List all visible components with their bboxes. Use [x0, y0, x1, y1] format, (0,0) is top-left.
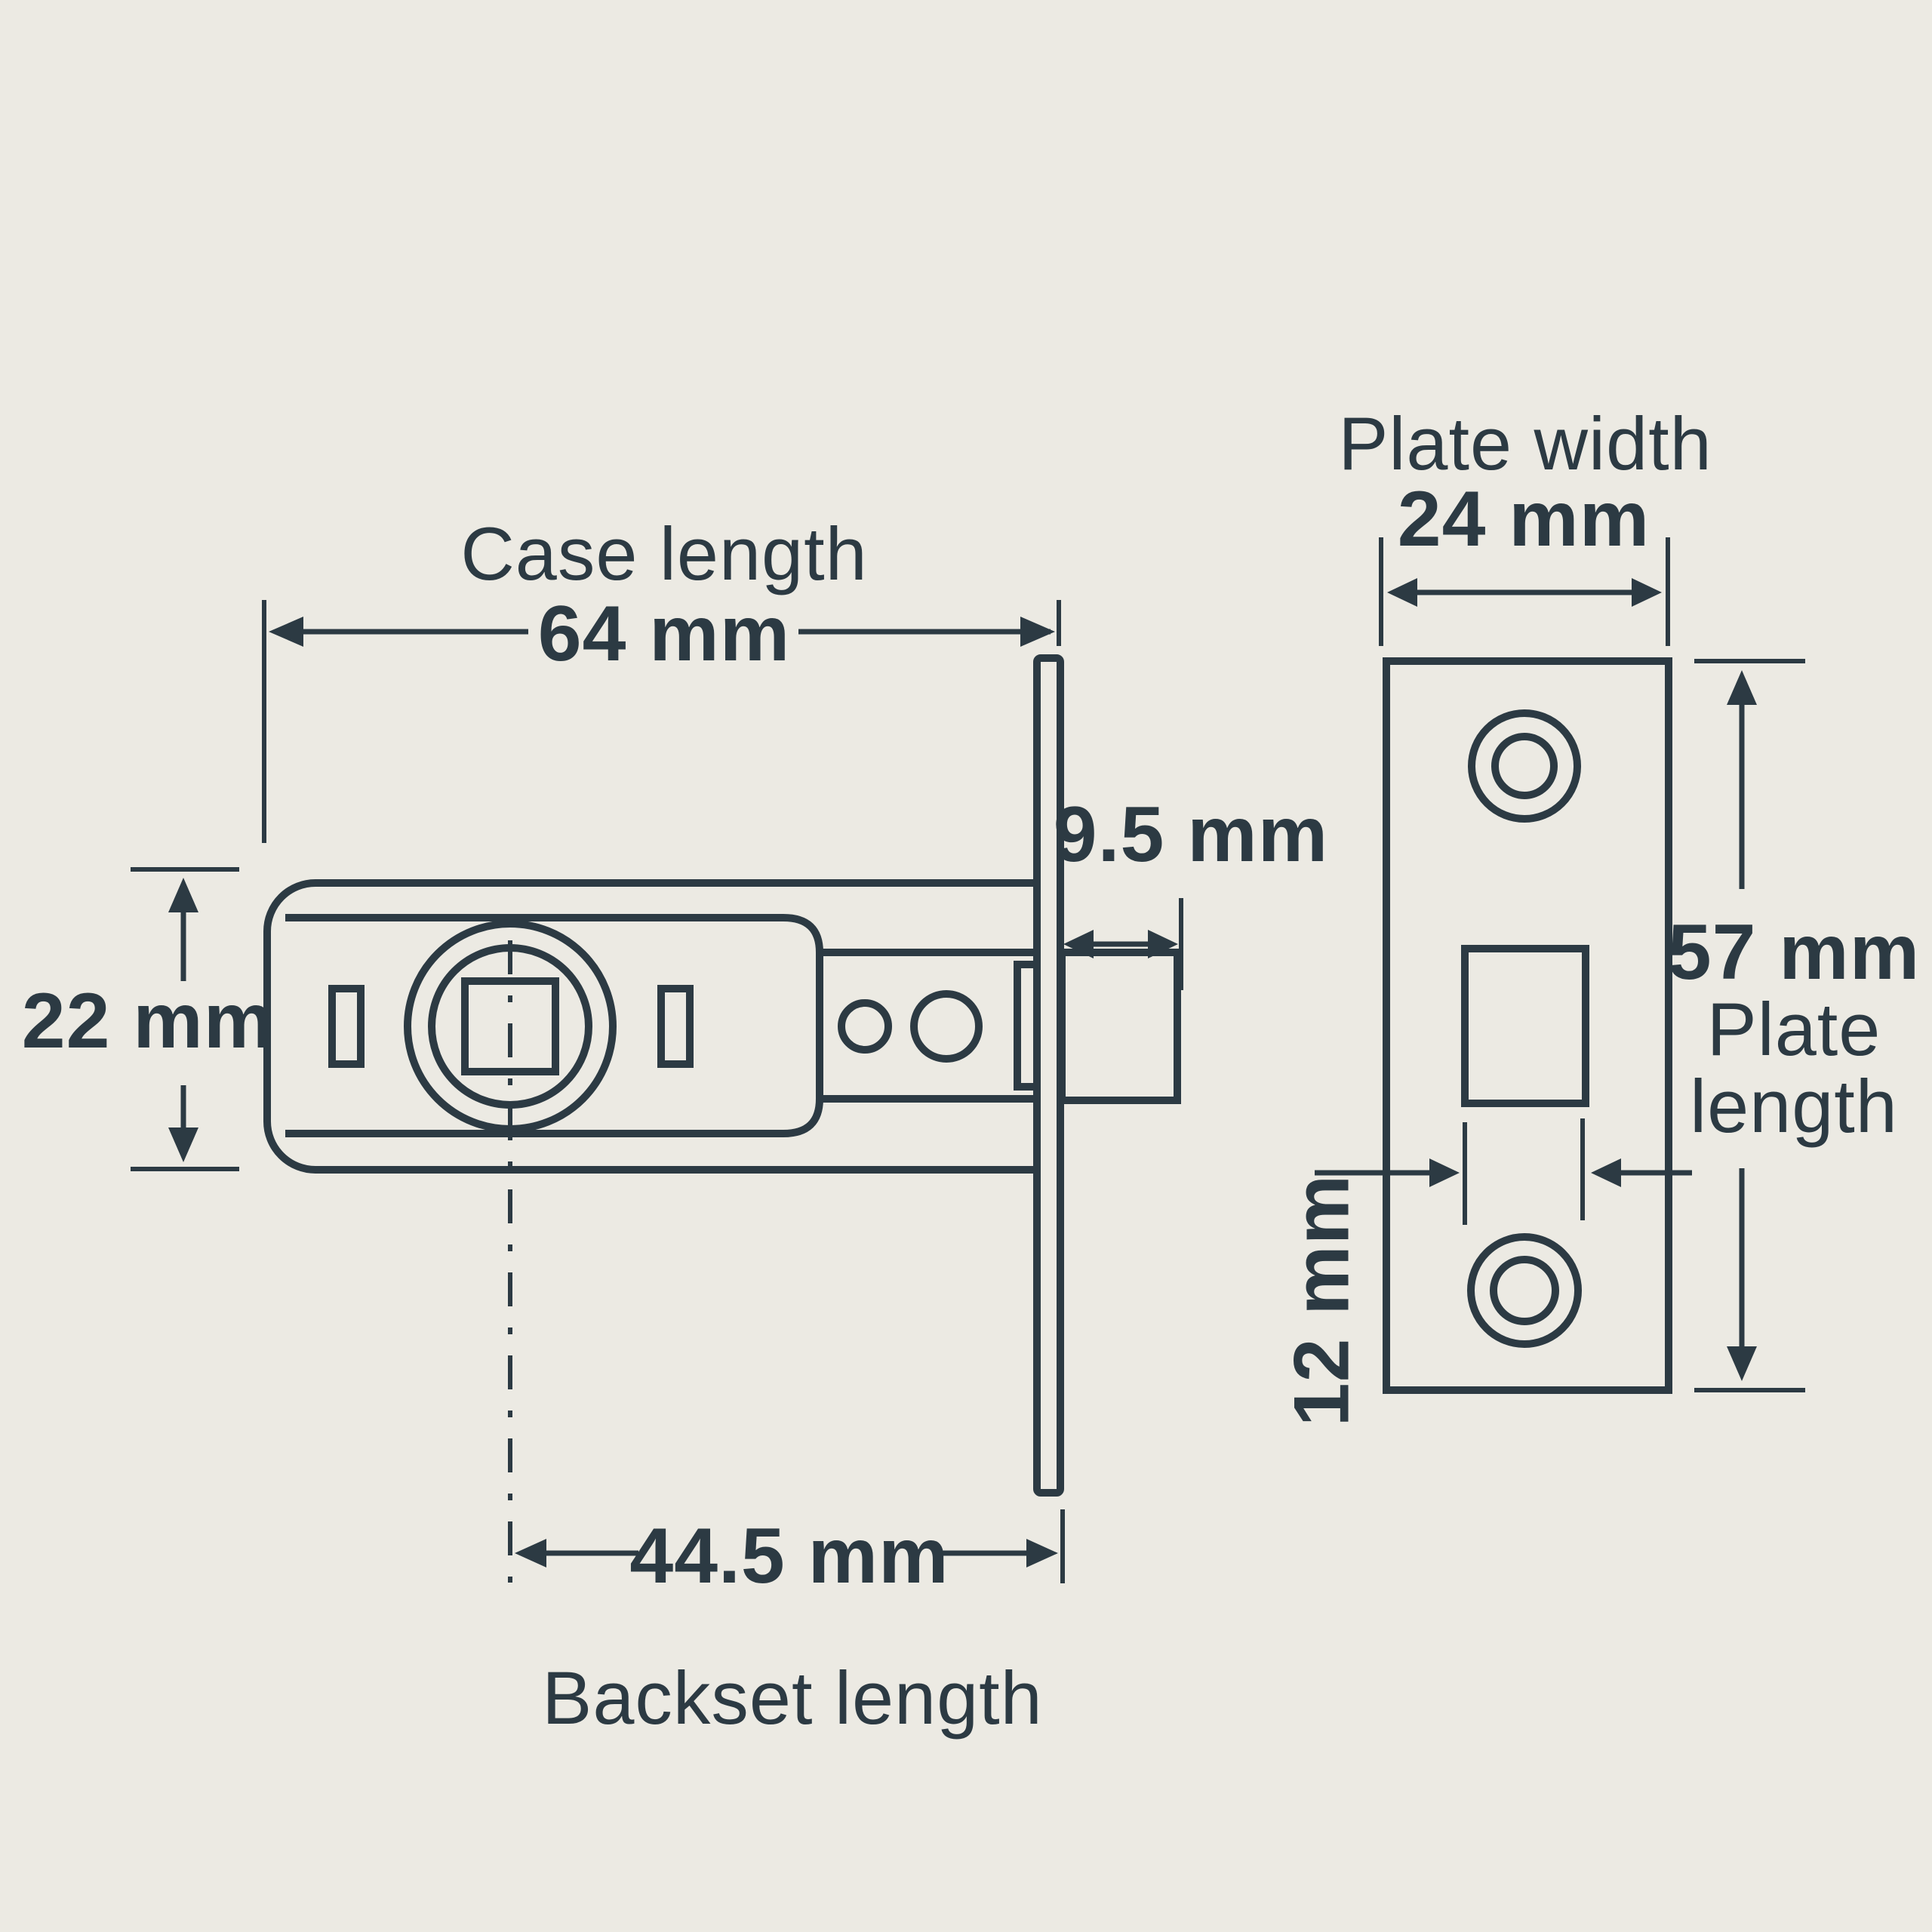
arrowhead-left-icon	[1387, 578, 1417, 607]
latch-dimensions-diagram: Case length 64 mm 22 mm 9.5 mm	[0, 0, 1932, 1932]
backset-label: Backset length	[542, 1656, 1042, 1740]
aperture-width-value: 12 mm	[1278, 1174, 1365, 1427]
plate-length-value: 57 mm	[1668, 909, 1921, 996]
latch-side-view	[267, 658, 1177, 1583]
arrowhead-left-icon	[1591, 1158, 1621, 1187]
arrowhead-up-icon	[168, 878, 198, 912]
housing-pin-large-circle	[914, 994, 979, 1059]
dim-plate-length: 57 mm Plate length	[1668, 661, 1921, 1390]
plate-length-label-line1: Plate	[1707, 987, 1881, 1071]
screw-slot-right	[661, 989, 690, 1064]
screw-hole-bottom-inner	[1494, 1260, 1555, 1321]
latch-bolt	[1062, 952, 1177, 1100]
case-length-label: Case length	[460, 512, 867, 595]
dim-backset: 44.5 mm Backset length	[515, 1509, 1063, 1740]
screw-hole-top-inner	[1495, 737, 1554, 795]
dim-plate-width: Plate width 24 mm	[1338, 401, 1712, 646]
latch-aperture	[1465, 949, 1586, 1103]
bolt-projection-value: 9.5 mm	[1054, 791, 1328, 878]
dim-aperture-width: 12 mm	[1278, 1118, 1692, 1426]
arrowhead-right-icon	[1429, 1158, 1460, 1187]
plate-length-label-line2: length	[1690, 1064, 1898, 1148]
plate-width-label: Plate width	[1338, 401, 1712, 485]
case-height-value: 22 mm	[22, 977, 275, 1065]
arrowhead-right-icon	[1026, 1539, 1058, 1567]
screw-hole-top-outer	[1472, 713, 1577, 819]
diagram-canvas: Case length 64 mm 22 mm 9.5 mm	[0, 0, 1932, 1932]
backset-value: 44.5 mm	[629, 1512, 949, 1600]
housing-pin-small-circle	[841, 1003, 888, 1050]
faceplate-front-view	[1386, 661, 1669, 1390]
arrowhead-left-icon	[269, 617, 303, 647]
arrowhead-up-icon	[1727, 670, 1757, 705]
arrowhead-down-icon	[168, 1128, 198, 1162]
faceplate-edge-view	[1037, 658, 1060, 1493]
arrowhead-right-icon	[1020, 617, 1055, 647]
arrowhead-left-icon	[515, 1539, 546, 1567]
dim-case-height: 22 mm	[22, 869, 275, 1169]
screw-slot-left	[332, 989, 361, 1064]
plate-width-value: 24 mm	[1398, 475, 1651, 563]
arrowhead-down-icon	[1727, 1346, 1757, 1381]
arrowhead-right-icon	[1632, 578, 1662, 607]
screw-hole-bottom-outer	[1471, 1237, 1578, 1344]
dim-case-length: Case length 64 mm	[264, 512, 1059, 843]
case-length-value: 64 mm	[538, 590, 791, 678]
